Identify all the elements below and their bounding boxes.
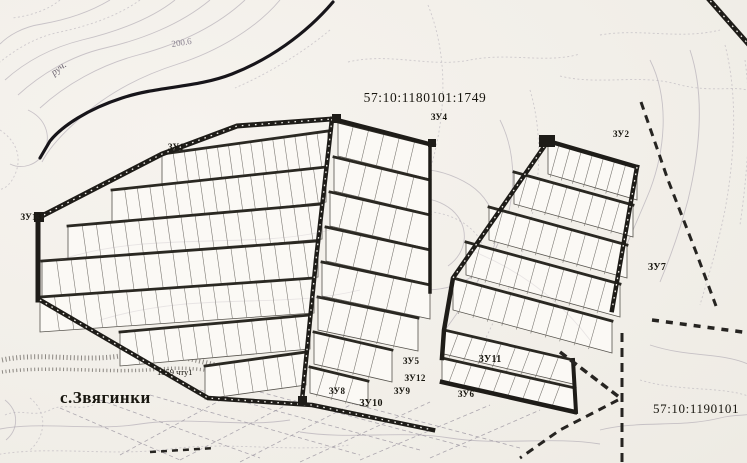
- cadastral-boundary: [641, 102, 716, 306]
- label-parcel-zu6: ЗУ6: [458, 389, 475, 399]
- map-line: [360, 405, 490, 460]
- label-parcel-zu9: ЗУ9: [394, 386, 411, 396]
- map-line: [40, 2, 333, 158]
- label-parcel-zu12: ЗУ12: [404, 373, 426, 383]
- label-parcel-zu10: ЗУ10: [359, 398, 383, 409]
- map-line: [30, 398, 43, 450]
- road-junction: [428, 139, 436, 147]
- label-cadastral-quarter-number: 57:10:1190101: [653, 401, 739, 416]
- road-junction: [539, 135, 555, 147]
- label-parcel-zu5: ЗУ5: [403, 356, 420, 366]
- label-parcel-zu11: ЗУ11: [478, 354, 501, 365]
- map-line: [650, 345, 747, 364]
- map-line: [706, 0, 747, 46]
- road-junction: [332, 114, 341, 123]
- label-cadastral-parcel-number: 57:10:1180101:1749: [364, 90, 487, 105]
- map-line: [740, 60, 747, 225]
- map-line: [2, 368, 236, 378]
- map-line: [12, 0, 60, 18]
- map-line: [0, 420, 290, 430]
- label-village-name: с.Звягинки: [60, 388, 151, 407]
- cadastral-map: 57:10:1180101:1749 57:10:1190101 с.Звяги…: [0, 0, 747, 463]
- map-line: [5, 0, 175, 80]
- road-junction: [298, 396, 307, 405]
- label-elevation-mark: 200.6: [171, 36, 193, 49]
- map-line: [430, 410, 540, 458]
- label-parcel-zu2: ЗУ2: [613, 129, 630, 139]
- label-parcel-zu8: ЗУ8: [329, 386, 346, 396]
- map-line: [0, 0, 140, 62]
- map-line: [600, 30, 720, 35]
- label-parcel-zu13: ЗУ13: [20, 212, 42, 222]
- map-line: [348, 54, 580, 62]
- label-parcel-zu4: ЗУ4: [431, 112, 448, 122]
- map-line: [560, 76, 747, 91]
- map-line: [235, 30, 330, 88]
- map-line: [5, 400, 16, 440]
- cadastral-map-canvas: 57:10:1180101:1749 57:10:1190101 с.Звяги…: [0, 0, 747, 463]
- label-survey-mark: 1559 чту1: [157, 367, 193, 377]
- label-parcel-zu1: ЗУ1: [168, 142, 185, 152]
- cadastral-boundary: [652, 320, 747, 333]
- map-line: [100, 400, 260, 458]
- map-line: [42, 0, 280, 162]
- map-line: [700, 45, 734, 305]
- map-line: [640, 380, 747, 396]
- label-parcel-zu7: ЗУ7: [648, 262, 666, 273]
- map-line: [0, 130, 18, 189]
